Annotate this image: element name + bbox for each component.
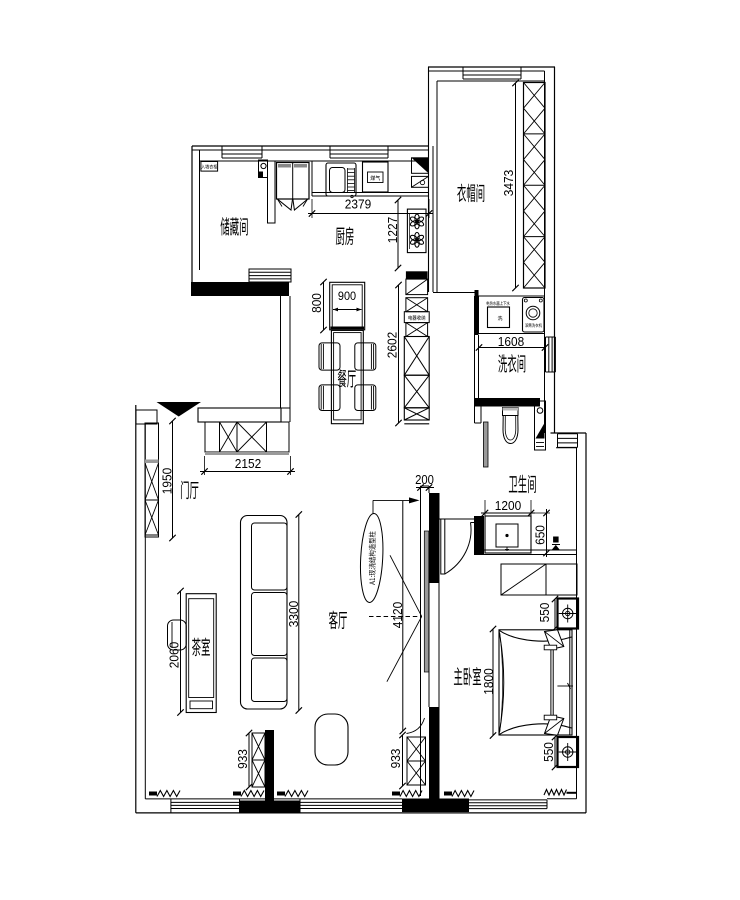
svg-text:933: 933 — [236, 749, 250, 769]
svg-text:550: 550 — [542, 742, 556, 762]
svg-text:800: 800 — [310, 293, 324, 313]
svg-text:3300: 3300 — [287, 601, 301, 628]
svg-text:1608: 1608 — [498, 335, 525, 349]
svg-text:2602: 2602 — [385, 332, 399, 359]
svg-text:1227: 1227 — [386, 217, 400, 244]
svg-text:1800: 1800 — [482, 668, 496, 695]
svg-text:2152: 2152 — [235, 457, 262, 471]
svg-text:4120: 4120 — [391, 602, 405, 629]
svg-text:1200: 1200 — [495, 499, 522, 513]
svg-text:2379: 2379 — [345, 197, 372, 211]
svg-text:933: 933 — [389, 748, 403, 768]
svg-text:900: 900 — [338, 291, 356, 303]
svg-text:2060: 2060 — [167, 642, 181, 669]
svg-text:3473: 3473 — [502, 170, 516, 197]
svg-text:650: 650 — [533, 525, 547, 545]
svg-text:550: 550 — [538, 602, 552, 622]
svg-text:1950: 1950 — [160, 468, 174, 495]
